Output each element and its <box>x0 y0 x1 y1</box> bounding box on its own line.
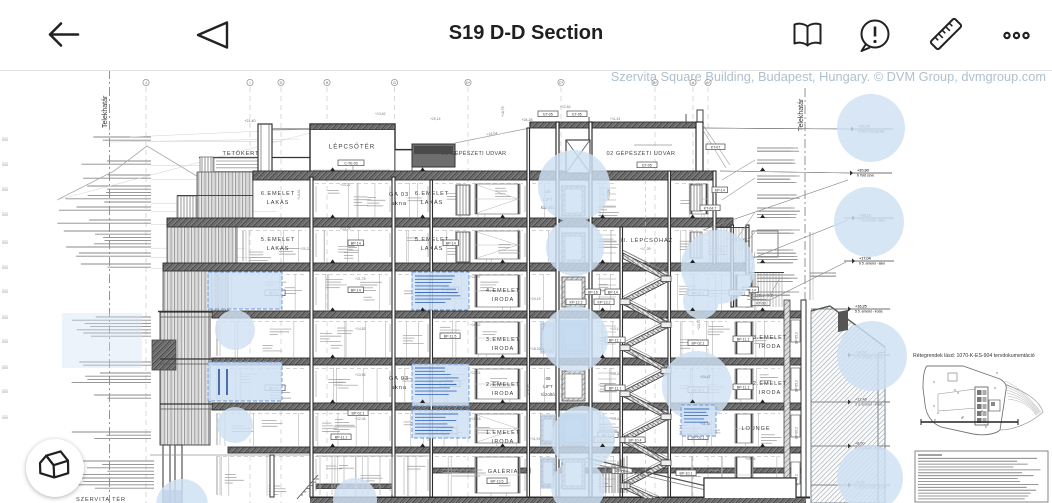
svg-text:02 GÉPÉSZETI UDVAR: 02 GÉPÉSZETI UDVAR <box>607 150 676 157</box>
svg-text:+13,22: +13,22 <box>340 183 351 187</box>
svg-text:BP-11.1: BP-11.1 <box>609 386 622 390</box>
svg-text:+24,57: +24,57 <box>697 319 701 330</box>
svg-text:+13,27: +13,27 <box>340 227 351 231</box>
svg-text:4.EMELET: 4.EMELET <box>486 288 520 294</box>
svg-text:+13,14: +13,14 <box>610 327 621 331</box>
svg-text:5.EMELET: 5.EMELET <box>261 237 295 243</box>
svg-text:tűzoltó: tűzoltó <box>541 392 555 397</box>
svg-text:+13,66: +13,66 <box>355 373 366 377</box>
svg-text:ET-05: ET-05 <box>572 112 582 116</box>
svg-text:I: I <box>250 81 251 85</box>
svg-text:+19,43: +19,43 <box>527 384 531 395</box>
svg-text:H: H <box>326 81 329 85</box>
svg-text:KP-12.3: KP-12.3 <box>570 300 583 304</box>
svg-text:C-TE-03: C-TE-03 <box>344 161 358 165</box>
svg-text:+21,40: +21,40 <box>244 119 255 123</box>
svg-text:BP-14: BP-14 <box>608 290 618 294</box>
svg-text:Rétegrendek lásd: 1070-K-ES-90: Rétegrendek lásd: 1070-K-ES-904 tervdoku… <box>913 353 1035 359</box>
svg-text:BP-11.1: BP-11.1 <box>609 338 622 342</box>
svg-text:+21,78: +21,78 <box>355 277 366 281</box>
svg-text:3 3. emelet - iroda: 3 3. emelet - iroda <box>855 403 882 407</box>
svg-text:IRODA: IRODA <box>759 390 781 396</box>
svg-text:5 5. emelet - iroda: 5 5. emelet - iroda <box>855 310 882 314</box>
svg-text:LOUNGE: LOUNGE <box>741 426 770 432</box>
svg-text:KT-07: KT-07 <box>711 145 721 149</box>
svg-text:3.EMELET: 3.EMELET <box>486 337 520 343</box>
svg-text:1.EMELET: 1.EMELET <box>486 430 520 436</box>
svg-text:+12,64: +12,64 <box>560 105 571 109</box>
svg-text:BP-14: BP-14 <box>446 241 456 245</box>
svg-text:+13,42: +13,42 <box>610 417 621 421</box>
svg-text:+15,18: +15,18 <box>470 417 481 421</box>
svg-text:+17,67: +17,67 <box>517 185 521 196</box>
svg-text:BP-11.5: BP-11.5 <box>444 334 457 338</box>
svg-text:BP-02.1: BP-02.1 <box>352 411 365 415</box>
svg-text:Telekhatár: Telekhatár <box>798 98 805 131</box>
svg-text:IRODA: IRODA <box>759 344 781 350</box>
svg-text:Telekhatár: Telekhatár <box>102 95 109 128</box>
svg-text:akna: akna <box>391 201 407 207</box>
svg-text:6.EMELET: 6.EMELET <box>261 191 295 197</box>
svg-text:LAKÁS: LAKÁS <box>267 245 290 252</box>
svg-text:+24,47: +24,47 <box>700 375 711 379</box>
svg-text:+24,19: +24,19 <box>530 297 541 301</box>
svg-text:+17,04: +17,04 <box>859 257 871 261</box>
svg-text:LAKÁS: LAKÁS <box>421 245 444 252</box>
svg-text:BP-14: BP-14 <box>351 288 361 292</box>
svg-text:+10,23: +10,23 <box>607 189 611 200</box>
svg-text:6 5. emelet - lakó: 6 5. emelet - lakó <box>859 262 885 266</box>
svg-text:+17,89: +17,89 <box>517 229 521 240</box>
svg-text:3.EMELET: 3.EMELET <box>753 335 787 341</box>
svg-text:6.EMELET: 6.EMELET <box>415 191 449 197</box>
svg-text:BP-14: BP-14 <box>351 241 361 245</box>
svg-text:+14,41: +14,41 <box>297 189 301 200</box>
svg-text:G: G <box>280 81 283 85</box>
svg-text:BP-16: BP-16 <box>588 290 598 294</box>
svg-text:+12,46: +12,46 <box>855 398 867 402</box>
svg-text:+14,82: +14,82 <box>355 327 366 331</box>
svg-text:B*: B* <box>653 81 657 85</box>
svg-text:LAKÁS: LAKÁS <box>421 199 444 206</box>
svg-text:TETŐKERT: TETŐKERT <box>223 150 260 157</box>
svg-text:+11,43: +11,43 <box>610 117 620 121</box>
svg-text:+20,90: +20,90 <box>857 169 869 173</box>
svg-text:01 GÉPÉSZETI UDVAR: 01 GÉPÉSZETI UDVAR <box>442 150 507 157</box>
svg-text:KP-13.2: KP-13.2 <box>598 300 611 304</box>
svg-text:BP-13.5: BP-13.5 <box>491 479 504 483</box>
svg-text:GA 03: GA 03 <box>389 376 409 382</box>
svg-text:LÉPCSŐTÉR: LÉPCSŐTÉR <box>329 144 375 151</box>
svg-text:+13,62: +13,62 <box>375 112 386 116</box>
svg-text:BP-02.1: BP-02.1 <box>692 341 705 345</box>
svg-text:+20,14: +20,14 <box>430 117 441 121</box>
svg-text:+11,91: +11,91 <box>530 437 540 441</box>
svg-text:+22,47: +22,47 <box>470 275 481 279</box>
svg-text:BP-11.1: BP-11.1 <box>737 337 750 341</box>
svg-text:IRODA: IRODA <box>492 391 514 397</box>
svg-text:+12,41: +12,41 <box>470 371 481 375</box>
svg-text:+8,50: +8,50 <box>855 442 865 446</box>
svg-text:06: 06 <box>545 376 551 381</box>
svg-text:GALÉRIA: GALÉRIA <box>488 468 519 475</box>
svg-text:+20,22: +20,22 <box>300 247 311 251</box>
svg-text:+15,28: +15,28 <box>610 372 621 376</box>
svg-text:J: J <box>145 81 147 85</box>
svg-text:+18,79: +18,79 <box>501 106 505 117</box>
svg-text:+18,32: +18,32 <box>530 347 541 351</box>
svg-text:BP-11.1: BP-11.1 <box>737 385 750 389</box>
svg-text:+17,39: +17,39 <box>640 247 651 251</box>
svg-text:KP-14: KP-14 <box>715 188 725 192</box>
svg-text:BP-11.1: BP-11.1 <box>335 435 348 439</box>
svg-text:+19,84: +19,84 <box>745 457 756 461</box>
svg-text:KT-04.7: KT-04.7 <box>704 206 717 210</box>
svg-text:akna: akna <box>391 385 407 391</box>
svg-text:D*: D* <box>466 81 471 85</box>
svg-text:+16,25: +16,25 <box>855 305 867 309</box>
svg-text:ET-05: ET-05 <box>642 163 652 167</box>
svg-text:BP-05.2: BP-05.2 <box>795 332 799 344</box>
svg-text:C*: C* <box>559 81 564 85</box>
svg-text:2.EMELET: 2.EMELET <box>753 381 787 387</box>
svg-text:BP-05.2: BP-05.2 <box>795 427 799 439</box>
svg-text:G: G <box>393 81 396 85</box>
svg-text:A*: A* <box>706 81 710 85</box>
svg-text:+11,16: +11,16 <box>700 422 710 426</box>
svg-text:IRODA: IRODA <box>492 346 514 352</box>
svg-text:+12,46: +12,46 <box>355 417 366 421</box>
svg-text:BP-10.1: BP-10.1 <box>680 471 693 475</box>
svg-text:6 Tető szve: 6 Tető szve <box>857 174 874 178</box>
svg-text:Szervita Square Building, Buda: Szervita Square Building, Budapest, Hung… <box>611 70 1046 84</box>
svg-text:+15,42: +15,42 <box>470 323 481 327</box>
svg-text:+24,28: +24,28 <box>521 118 532 122</box>
svg-text:IRODA: IRODA <box>492 297 514 303</box>
svg-text:BP-10.4: BP-10.4 <box>629 438 642 442</box>
svg-text:2.EMELET: 2.EMELET <box>486 382 520 388</box>
svg-text:LAKÁS: LAKÁS <box>267 199 290 206</box>
svg-text:II. LÉPCSŐHÁZ: II. LÉPCSŐHÁZ <box>621 237 673 244</box>
svg-text:GA 03: GA 03 <box>389 192 409 198</box>
svg-text:BP-05.2: BP-05.2 <box>795 380 799 392</box>
svg-text:ET-05: ET-05 <box>543 112 553 116</box>
